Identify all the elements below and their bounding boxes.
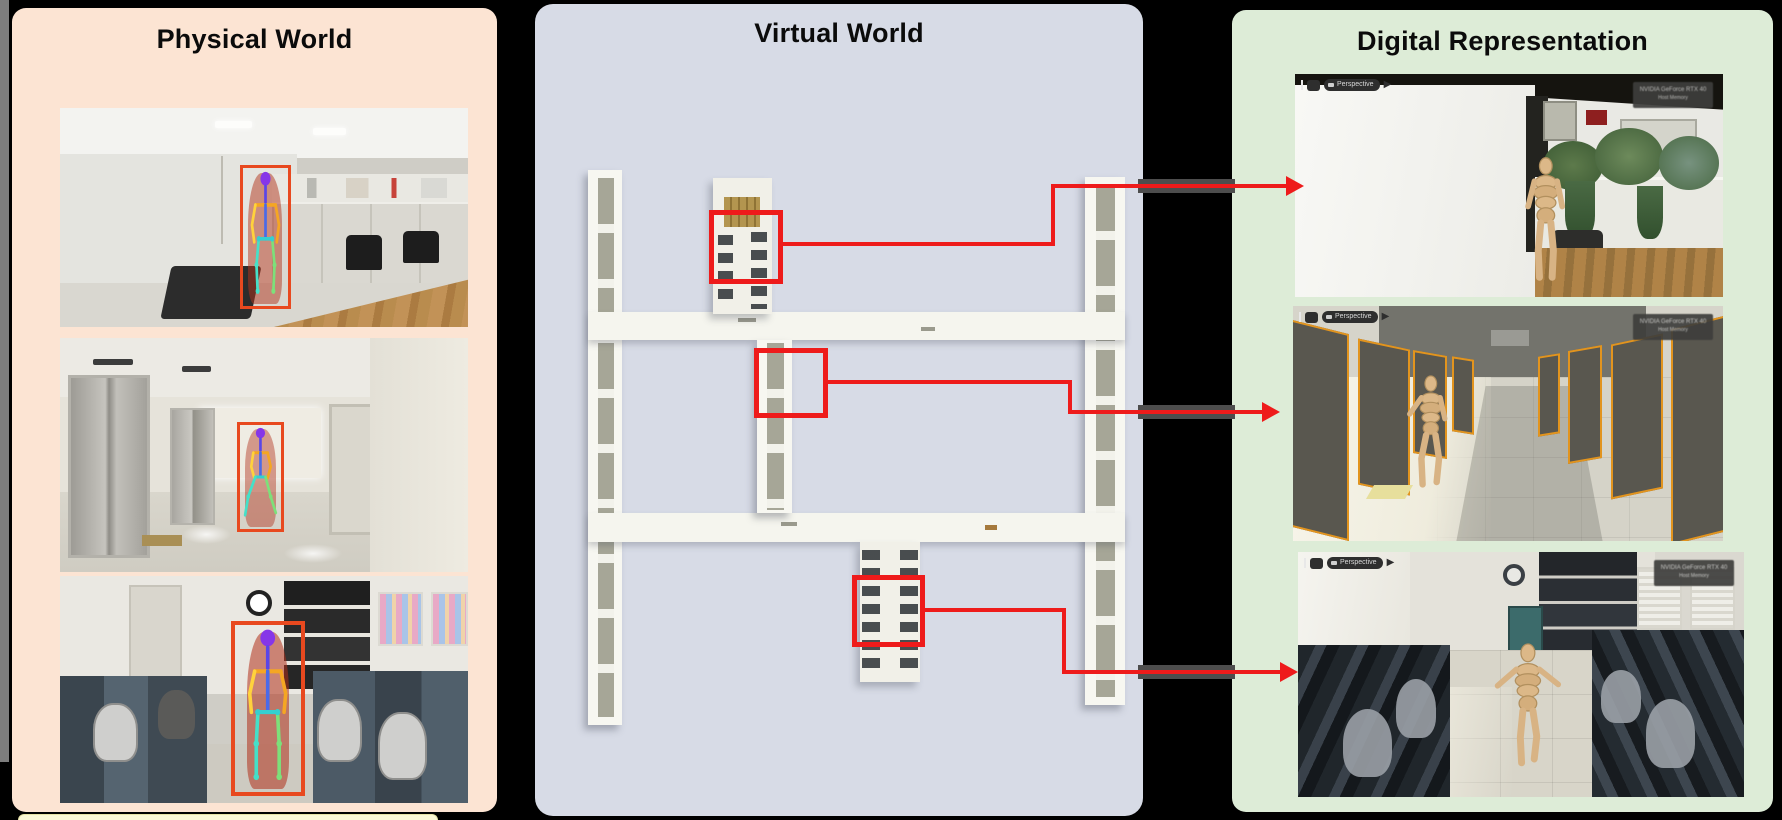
desk-items: [297, 178, 460, 198]
arrow2-segment: [828, 380, 1072, 384]
door-right-2: [1611, 333, 1663, 499]
floor-reflection: [284, 544, 341, 563]
wall-sign: [1491, 330, 1530, 346]
chevron-right-icon[interactable]: ▶: [1387, 557, 1395, 569]
person-detection-box: [231, 621, 304, 796]
physical-world-title: Physical World: [12, 24, 497, 55]
camera-icon: [1331, 561, 1337, 565]
digital-representation-title: Digital Representation: [1232, 26, 1773, 57]
viewport-toolbar: Perspective ▶: [1301, 79, 1391, 91]
photo-meeting-room: [60, 108, 468, 327]
toolbar-tick: [1299, 312, 1301, 322]
pose-skeleton: [240, 425, 281, 529]
ceiling-vent: [182, 366, 211, 372]
chevron-right-icon[interactable]: ▶: [1384, 79, 1392, 91]
nvidia-watermark: NVIDIA GeForce RTX 40 Host Memory: [1633, 82, 1713, 108]
floorplan-lower-corridor: [588, 513, 1125, 542]
office-chair: [1343, 709, 1392, 778]
ceiling-vent: [93, 359, 134, 365]
person-detection-box: [237, 422, 284, 532]
region-box-corridor: [754, 348, 828, 418]
camera-icon: [1326, 315, 1332, 319]
wall-poster: [378, 592, 423, 646]
floorplan-left-wall: [588, 170, 622, 725]
viewport-toolbar: Perspective ▶: [1299, 311, 1389, 323]
pose-skeleton: [235, 625, 300, 792]
arrow1-segment: [1051, 184, 1288, 188]
door-right-3: [1568, 345, 1602, 464]
perspective-dropdown[interactable]: Perspective: [1327, 557, 1383, 569]
person-detection-box: [240, 165, 291, 310]
arrow3-segment: [1062, 670, 1282, 674]
photo-elevator-lobby: [60, 338, 468, 572]
arrow1-head: [1286, 176, 1304, 196]
arrow2-head: [1262, 402, 1280, 422]
arrow1-segment: [1051, 184, 1055, 246]
cropped-caption-box: [18, 814, 438, 820]
wall-poster: [431, 592, 468, 646]
wall-clock: [246, 590, 272, 616]
arrow3-segment: [1062, 608, 1066, 674]
panel-digital-representation: Digital Representation: [1232, 10, 1773, 812]
hanging-vine: [1637, 186, 1663, 240]
arrow2-segment: [1068, 410, 1264, 414]
plant: [1659, 136, 1719, 190]
panel-virtual-world: Virtual World: [535, 4, 1143, 816]
office-chair: [317, 699, 362, 763]
nvidia-watermark: NVIDIA GeForce RTX 40 Host Memory: [1633, 314, 1713, 340]
plant: [1595, 128, 1663, 186]
perspective-dropdown[interactable]: Perspective: [1324, 79, 1380, 91]
chevron-right-icon[interactable]: ▶: [1382, 311, 1390, 323]
render-office-corner: Perspective ▶ NVIDIA GeForce RTX 40 Host…: [1295, 74, 1723, 297]
render-office-room: Perspective ▶ NVIDIA GeForce RTX 40 Host…: [1298, 552, 1744, 797]
region-box-bottom-room: [852, 575, 925, 647]
viewport-toolbar: Perspective ▶: [1304, 557, 1394, 569]
toolbar-tick: [1301, 80, 1303, 90]
menu-icon[interactable]: [1307, 80, 1320, 91]
floor-reflection: [182, 525, 231, 544]
mannequin: [1518, 150, 1574, 288]
office-chair: [1646, 699, 1695, 768]
door: [129, 585, 182, 685]
arrow3-head: [1280, 662, 1298, 682]
door-right-4: [1538, 354, 1560, 437]
nvidia-watermark: NVIDIA GeForce RTX 40 Host Memory: [1654, 560, 1734, 586]
ceiling-light: [313, 128, 346, 135]
panel-physical-world: Physical World: [12, 8, 497, 812]
menu-icon[interactable]: [1305, 312, 1318, 323]
perspective-label: Perspective: [1337, 79, 1374, 91]
office-chair: [403, 231, 440, 264]
mannequin: [1405, 367, 1457, 499]
menu-icon[interactable]: [1310, 558, 1323, 569]
elevator-doors: [68, 375, 150, 558]
ceiling-light: [215, 121, 252, 128]
perspective-label: Perspective: [1340, 557, 1377, 569]
ceiling: [60, 108, 468, 158]
right-wall: [370, 338, 468, 572]
floorplan-right-wall: [1085, 177, 1125, 705]
door-right-1: [1671, 311, 1723, 541]
floor-mat: [142, 535, 183, 547]
perspective-dropdown[interactable]: Perspective: [1322, 311, 1378, 323]
floorplan-upper-corridor: [588, 312, 1125, 340]
left-edge-strip: [0, 0, 9, 762]
arrow2-segment: [1068, 380, 1072, 414]
render-elevator-hall: Perspective ▶ NVIDIA GeForce RTX 40 Host…: [1293, 306, 1723, 541]
white-wall: [1295, 85, 1535, 297]
door-edge: [221, 156, 223, 244]
cabinet: [1543, 101, 1577, 141]
figure-canvas: Physical World: [0, 0, 1782, 820]
office-chair: [93, 703, 138, 762]
camera-icon: [1328, 83, 1334, 87]
perspective-label: Perspective: [1335, 311, 1372, 323]
arrow1-segment: [783, 242, 1055, 246]
virtual-world-title: Virtual World: [535, 18, 1143, 49]
toolbar-tick: [1304, 558, 1306, 568]
door-left-1: [1293, 316, 1349, 541]
office-chair: [158, 690, 195, 740]
office-chair: [346, 235, 383, 270]
red-panel: [1586, 110, 1607, 126]
photo-office-room: [60, 576, 468, 803]
arrow3-segment: [925, 608, 1066, 612]
mannequin: [1490, 630, 1566, 782]
office-chair: [1601, 670, 1641, 724]
pose-skeleton: [243, 168, 288, 307]
office-chair: [378, 712, 427, 780]
elevator-doors: [170, 408, 215, 525]
office-chair: [1396, 679, 1436, 738]
region-box-top-room: [709, 210, 783, 284]
door-left-2: [1358, 338, 1410, 495]
